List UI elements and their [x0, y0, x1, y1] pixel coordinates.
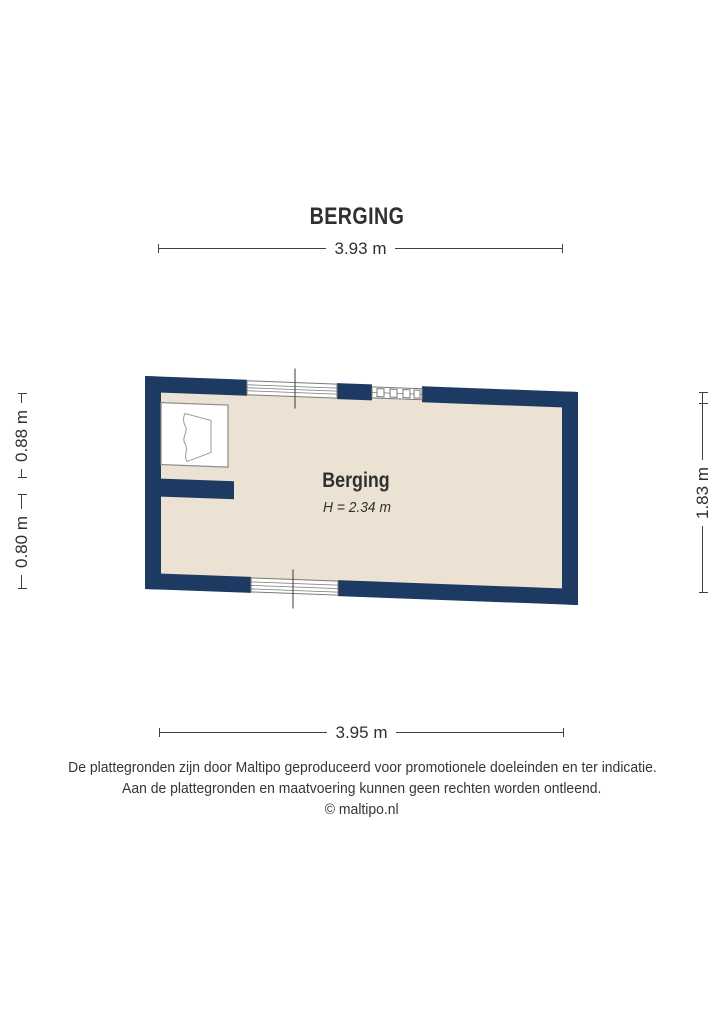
- interior-wall-stub: [161, 479, 234, 500]
- wall-left: [145, 376, 161, 590]
- dimension-top-label: 3.93 m: [326, 239, 396, 259]
- dimension-right-inner-tick: [699, 403, 708, 404]
- dimension-left-upper: 0.88 m: [21, 393, 22, 478]
- dimension-bottom-label: 3.95 m: [327, 723, 397, 743]
- vent-cell: [414, 390, 420, 398]
- vent-cell: [377, 389, 384, 397]
- footer-line-1-text: De plattegronden zijn door Maltipo gepro…: [68, 757, 657, 778]
- room-height-text: H = 2.34 m: [323, 499, 391, 516]
- page-title-text: BERGING: [310, 203, 405, 231]
- footer-line-3-text: © maltipo.nl: [325, 799, 399, 820]
- vent-top: [372, 387, 422, 400]
- window-bottom: [251, 578, 338, 595]
- vent-cell: [390, 389, 397, 397]
- floorplan-page: { "title": "BERGING", "dimensions": { "t…: [0, 0, 724, 1024]
- dimension-left-lower-label: 0.80 m: [12, 509, 32, 575]
- room-name-label: Berging: [316, 469, 395, 493]
- dimension-right-label: 1.83 m: [693, 460, 713, 526]
- room-name-text: Berging: [322, 469, 389, 493]
- dimension-left-upper-label: 0.88 m: [12, 403, 32, 469]
- footer-line-2-text: Aan de plattegronden en maatvoering kunn…: [122, 778, 601, 799]
- wall-right: [562, 391, 578, 605]
- fixture-niche: [161, 403, 228, 467]
- footer-line-1: De plattegronden zijn door Maltipo gepro…: [0, 757, 724, 778]
- room-height-label: H = 2.34 m: [320, 499, 394, 516]
- vent-cell: [403, 390, 410, 398]
- window-top: [247, 381, 337, 398]
- footer-line-3: © maltipo.nl: [0, 799, 724, 820]
- window-bottom-frame: [251, 578, 338, 595]
- footer: De plattegronden zijn door Maltipo gepro…: [0, 757, 724, 820]
- dimension-bottom: 3.95 m: [159, 732, 564, 733]
- dimension-top: 3.93 m: [158, 248, 563, 249]
- dimension-left-lower: 0.80 m: [21, 494, 22, 589]
- footer-line-2: Aan de plattegronden en maatvoering kunn…: [0, 778, 724, 799]
- fixture-box: [161, 403, 228, 467]
- page-title: BERGING: [299, 203, 415, 231]
- wall-top-segment-2: [337, 383, 372, 400]
- dimension-right: 1.83 m: [702, 392, 703, 593]
